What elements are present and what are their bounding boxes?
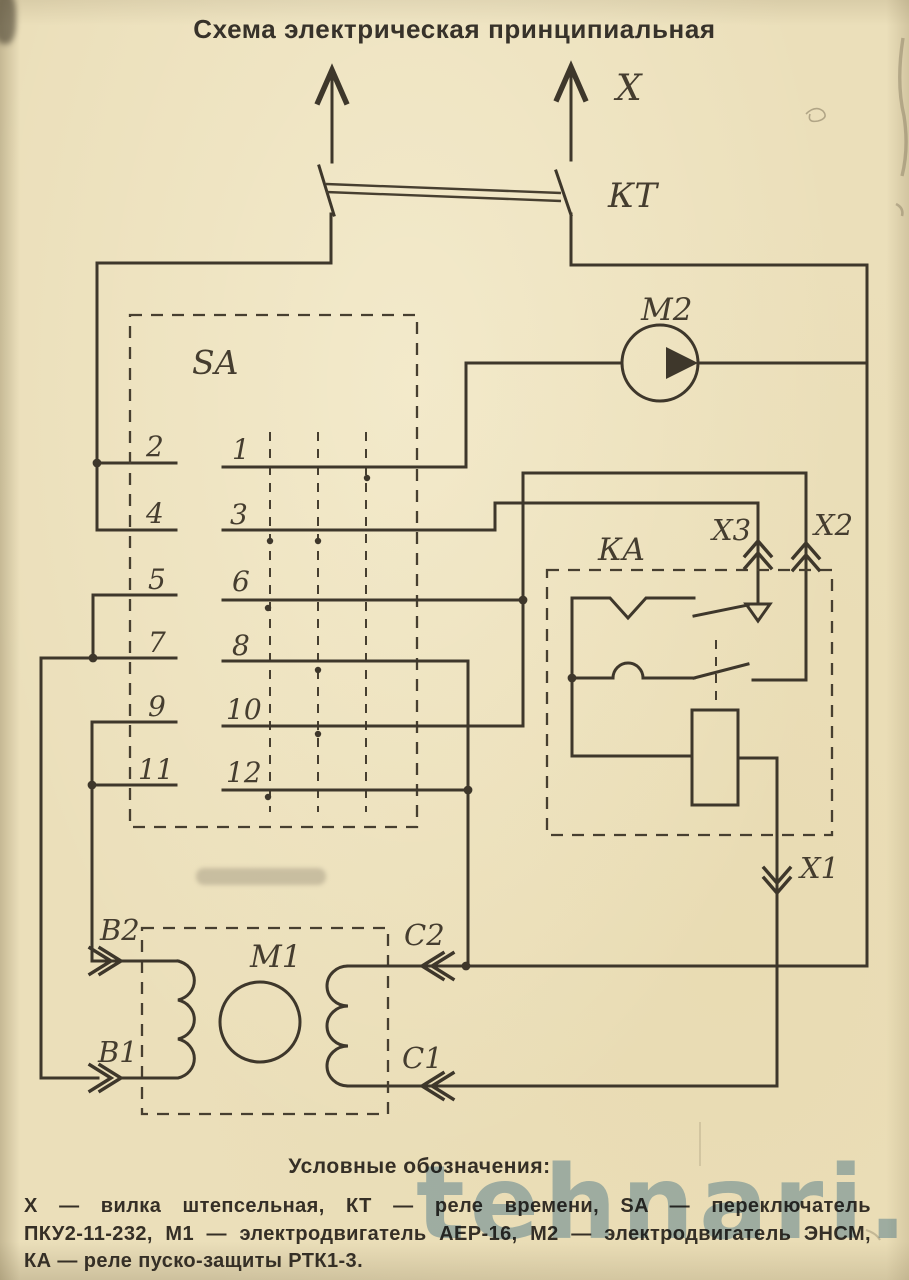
m2-motor: [466, 325, 867, 467]
sa-contact-2: 2: [145, 430, 164, 463]
c1-label: С1: [402, 1041, 443, 1075]
junction-dot: [93, 459, 102, 468]
sa-position-dot: [267, 538, 273, 544]
junction-dot: [519, 596, 528, 605]
b2-label: В2: [99, 913, 140, 947]
ka-dashed-box: [547, 570, 832, 835]
kt-label: КТ: [607, 176, 659, 216]
x1-label: Х1: [798, 851, 839, 885]
sa-label: SA: [192, 343, 238, 382]
ka-lower-blade: [694, 664, 748, 678]
sa-contact-1: 1: [232, 433, 250, 466]
top-bus-left: [97, 263, 331, 530]
ka-coil-rect: [692, 710, 738, 805]
scanned-schematic-page: Схема электрическая принципиальная: [0, 0, 909, 1280]
sa-position-dot: [315, 731, 321, 737]
junction-dot: [464, 786, 473, 795]
sa-position-dot: [364, 475, 370, 481]
kt-linkage-line-1: [326, 184, 561, 193]
ka-thermal-plate: [572, 598, 694, 618]
site-watermark: tehnari.ru: [416, 1144, 909, 1263]
sa-contact-11: 11: [138, 753, 174, 786]
sa-contact-4: 4: [145, 497, 164, 530]
m1-motor-circle: [220, 982, 300, 1062]
junction-dot: [462, 962, 471, 971]
plug-x-label: Х: [613, 68, 643, 109]
sa-position-dot: [315, 667, 321, 673]
sa-contact-10: 10: [226, 693, 262, 726]
sa-contact-12: 12: [226, 756, 262, 789]
sa-position-dot: [265, 794, 271, 800]
sa-contact-9: 9: [148, 690, 166, 723]
m1-right-winding: [327, 966, 348, 1086]
junction-dot: [568, 674, 577, 683]
sa-row3-line-to-x3: [223, 503, 758, 604]
sa-contact-8: 8: [232, 629, 250, 662]
sa-contact-3: 3: [230, 498, 248, 531]
scan-artifacts: [700, 38, 906, 1240]
junction-dot: [89, 654, 98, 663]
kt-time-relay-contacts: [319, 166, 571, 265]
sa-position-dot: [315, 538, 321, 544]
m2-label: М2: [640, 292, 692, 328]
corner-shadow: [0, 0, 16, 44]
x2-label: Х2: [812, 508, 853, 542]
m2-rotation-arrow-icon: [666, 347, 698, 379]
junction-dot: [88, 781, 97, 790]
plug-x-arrows: [318, 67, 585, 162]
sa-contact-7: 7: [148, 626, 166, 659]
m1-label: М1: [249, 939, 301, 975]
c2-label: С2: [404, 918, 445, 952]
kt-left-blade: [319, 166, 334, 215]
sa-dashed-box: [130, 315, 417, 827]
ka-heater-bump: [572, 663, 694, 678]
x3-label: Х3: [710, 513, 751, 547]
m2-left-wire: [466, 363, 622, 467]
ka-fixed-contact-triangle: [746, 604, 770, 621]
kt-linkage-line-2: [326, 192, 561, 201]
ka-upper-blade: [694, 605, 748, 616]
sa-contact-5: 5: [148, 563, 166, 596]
ka-label: КА: [597, 532, 645, 568]
sa-contact-6: 6: [232, 565, 250, 598]
b1-label: В1: [97, 1035, 138, 1069]
sa-contact-numbers: 2 4 5 7 9 11 1 3 6 8 10 12: [138, 430, 262, 789]
sa-position-dot: [265, 605, 271, 611]
ka-relay-block: [348, 570, 832, 1086]
circuit-diagram: Х КТ М2 SA КА Х3 Х2 Х1 М1 В2 В1 С2 С1 2 …: [0, 0, 909, 1280]
scan-smudge: [196, 868, 326, 885]
